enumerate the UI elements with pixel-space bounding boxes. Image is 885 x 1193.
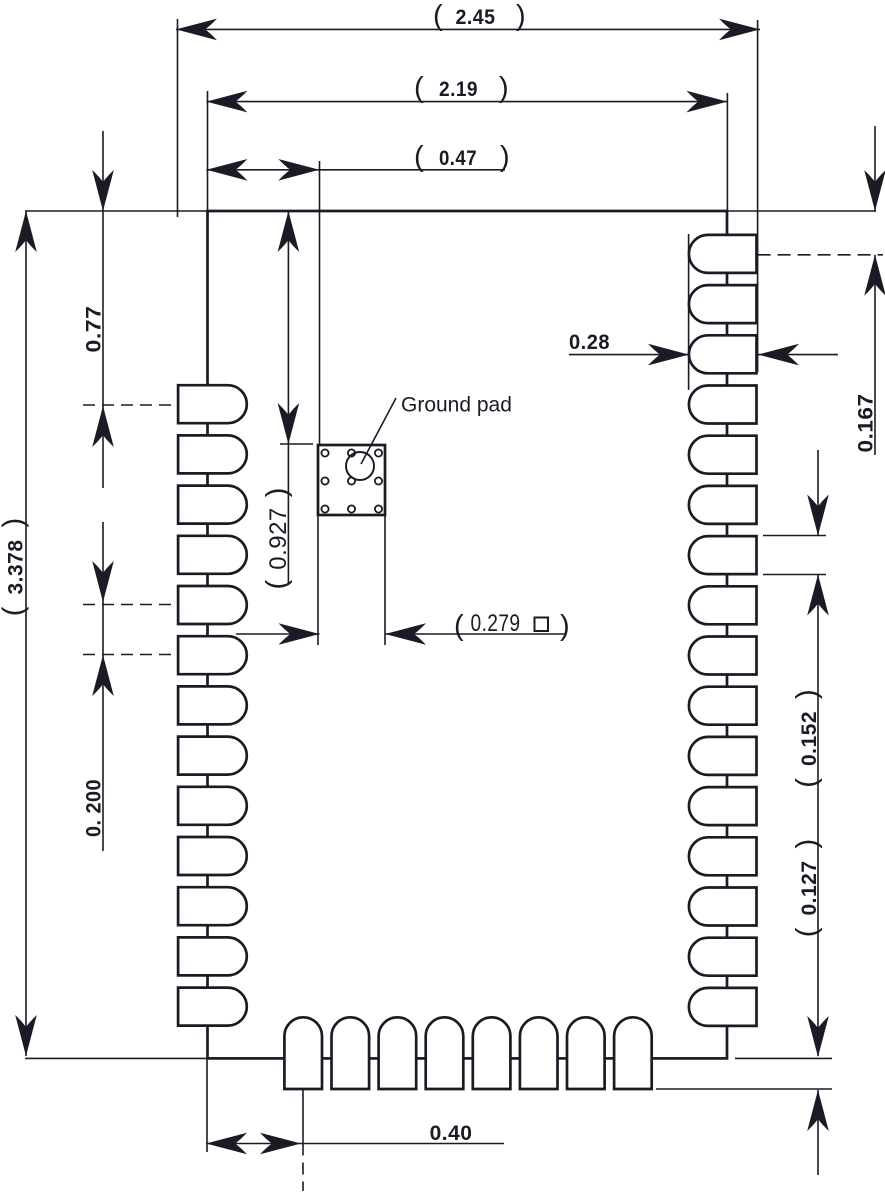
svg-text:0.279: 0.279 bbox=[471, 610, 521, 637]
svg-text:2.19: 2.19 bbox=[439, 78, 478, 101]
svg-text:(: ( bbox=[454, 610, 464, 642]
svg-text:0.77: 0.77 bbox=[83, 306, 106, 353]
svg-text:0. 200: 0. 200 bbox=[83, 779, 106, 837]
svg-text:2.45: 2.45 bbox=[456, 6, 496, 29]
svg-text:0.167: 0.167 bbox=[855, 394, 878, 453]
svg-text:): ) bbox=[516, 0, 526, 32]
svg-text:0.40: 0.40 bbox=[430, 1122, 473, 1145]
svg-text:): ) bbox=[560, 610, 570, 642]
svg-text:(: ( bbox=[414, 141, 424, 173]
svg-text:(: ( bbox=[433, 0, 443, 32]
svg-text:0.47: 0.47 bbox=[439, 147, 477, 170]
svg-text:Ground pad: Ground pad bbox=[401, 394, 512, 417]
svg-text:(: ( bbox=[414, 72, 424, 104]
svg-text:): ) bbox=[500, 141, 510, 173]
svg-text:0.28: 0.28 bbox=[569, 331, 610, 354]
svg-text:): ) bbox=[499, 72, 509, 104]
